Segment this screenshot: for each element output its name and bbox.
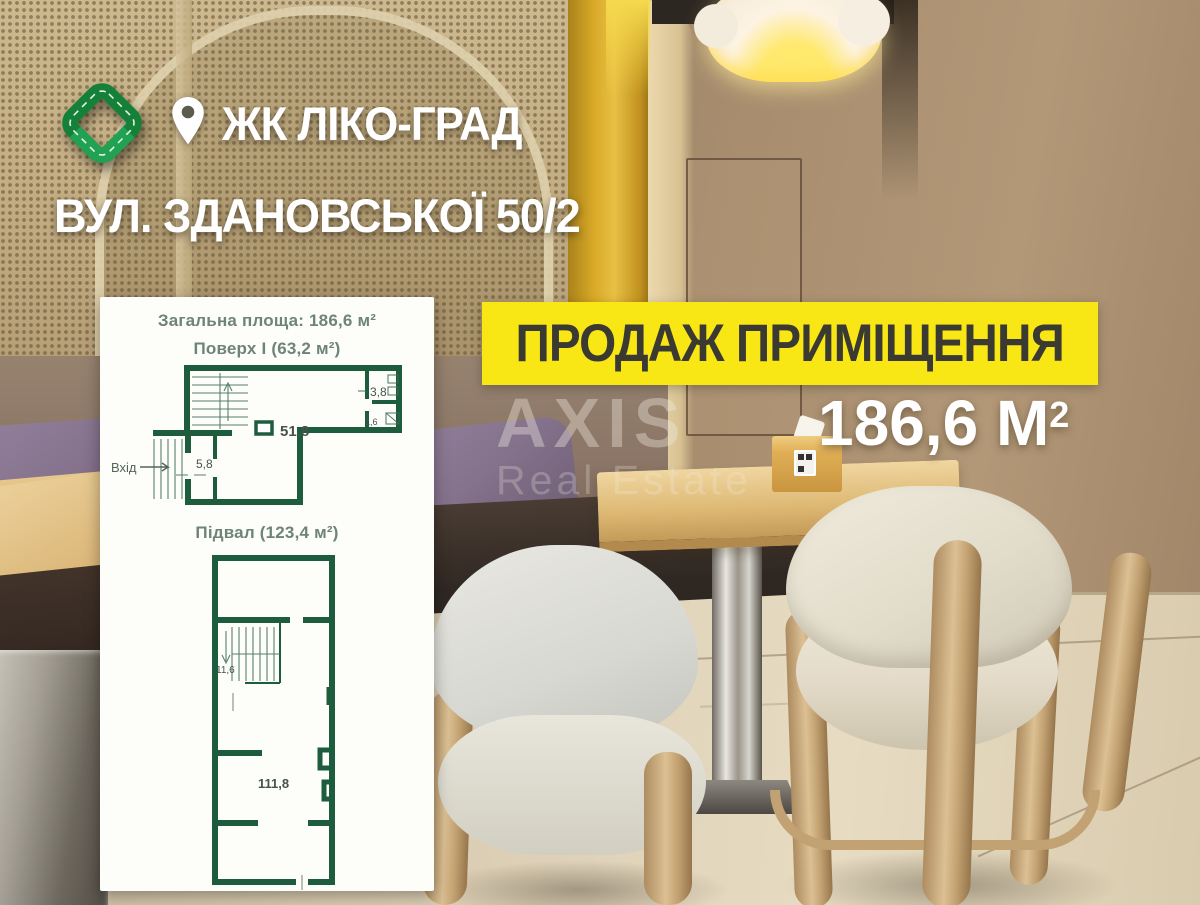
floor1-plan: 51,8 3,8 1,6 5,8 Вхід <box>110 355 424 513</box>
street-address: ВУЛ. ЗДАНОВСЬКОЇ 50/2 <box>54 188 580 243</box>
floor1-wc-area-label: 3,8 <box>370 385 387 399</box>
lamp-glow <box>606 0 650 96</box>
floor1-wc2-area-label: 1,6 <box>365 417 378 427</box>
sale-banner: ПРОДАЖ ПРИМІЩЕННЯ <box>482 302 1098 385</box>
location-row: ЖК ЛІКО-ГРАД <box>170 94 544 153</box>
agency-logo-icon <box>55 74 149 177</box>
chair-right-back <box>786 486 1072 668</box>
complex-name: ЖК ЛІКО-ГРАД <box>222 96 522 151</box>
basement-stairs-area-label: 11,6 <box>216 665 235 676</box>
table-pedestal <box>712 530 762 792</box>
entrance-label: Вхід <box>111 460 137 475</box>
floor1-vestibule-area-label: 5,8 <box>196 457 213 471</box>
pendant-lamp <box>706 0 882 82</box>
floorplan-panel: Загальна площа: 186,6 м² Поверх І (63,2 … <box>100 297 434 891</box>
area-superscript: 2 <box>1049 394 1069 435</box>
qr-code <box>794 450 816 476</box>
metal-box <box>0 650 108 905</box>
basement-hall-area-label: 111,8 <box>258 776 289 791</box>
listing-ad: AXIS Real Estate ЖК ЛІКО-ГРАД ВУЛ. ЗДАНО… <box>0 0 1200 905</box>
area-value: 186,6 М <box>818 387 1049 459</box>
basement-plan: 11,6 111,8 <box>110 545 424 891</box>
floor1-hall-area-label: 51,8 <box>280 423 309 440</box>
interior-door <box>686 158 802 436</box>
floorplan-total-area: Загальна площа: 186,6 м² <box>100 311 434 331</box>
basement-title: Підвал (123,4 м²) <box>100 523 434 543</box>
area-headline: 186,6 М2 <box>818 386 1069 460</box>
location-pin-icon <box>170 94 206 153</box>
sale-banner-label: ПРОДАЖ ПРИМІЩЕННЯ <box>516 313 1064 374</box>
chair-leg <box>644 752 692 905</box>
